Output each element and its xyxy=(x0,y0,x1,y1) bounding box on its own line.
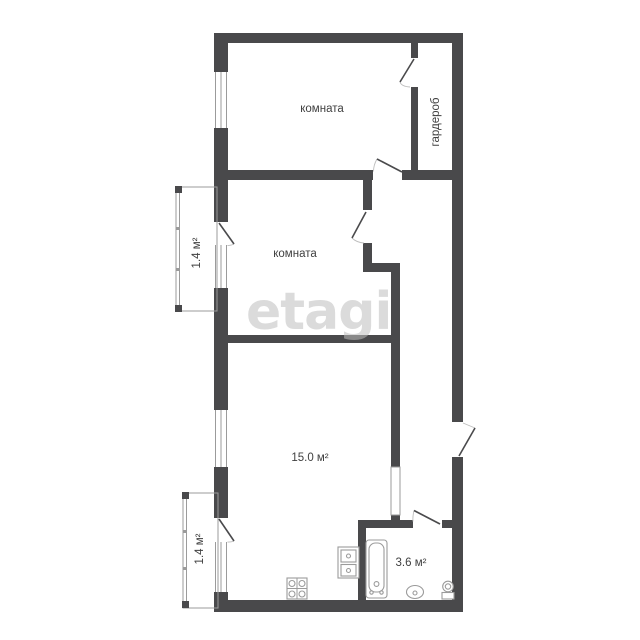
wall-bath-top-left xyxy=(358,520,413,528)
door-swing-icon xyxy=(219,519,234,542)
outer-walls xyxy=(214,33,463,612)
wall-divider1-right xyxy=(402,170,452,180)
wall-bath-top-right xyxy=(442,520,452,528)
kitchen-sink-icon xyxy=(338,547,359,578)
door-swing-icon xyxy=(219,223,234,246)
wall-right-2 xyxy=(452,457,463,612)
wall-right-1 xyxy=(452,33,463,422)
toilet-icon xyxy=(442,581,454,599)
door-swing-icon xyxy=(352,212,366,243)
wall-left-3 xyxy=(214,288,228,410)
door-swing-icon xyxy=(452,422,475,457)
wall-divider1-left xyxy=(228,170,373,180)
floor-plan-svg: комната гардероб комната 1.4 м² 15.0 м² … xyxy=(0,0,640,640)
label-room-top: комната xyxy=(300,103,344,115)
wall-bottom xyxy=(214,600,463,612)
fixtures xyxy=(287,540,454,599)
window-icon xyxy=(214,410,228,467)
windows xyxy=(214,72,400,592)
door-swing-icon xyxy=(374,159,403,172)
door-swing-icon xyxy=(400,59,414,87)
label-living-kitchen: 15.0 м² xyxy=(291,452,328,464)
window-icon xyxy=(214,72,228,128)
wall-divider2 xyxy=(228,335,400,343)
wall-wardrobe-stub xyxy=(411,43,418,58)
wall-corridor xyxy=(391,272,400,467)
window-icon xyxy=(214,245,228,288)
interior-walls xyxy=(228,43,452,600)
open-doorway xyxy=(391,467,400,515)
wall-room2-right-1 xyxy=(363,180,372,210)
floor-plan-canvas: комната гардероб комната 1.4 м² 15.0 м² … xyxy=(0,0,640,640)
wall-wardrobe xyxy=(411,87,418,170)
wall-jog xyxy=(363,263,400,272)
wall-left-1 xyxy=(214,33,228,72)
window-icon xyxy=(214,542,228,592)
room-labels: комната гардероб комната 1.4 м² 15.0 м² … xyxy=(191,97,442,569)
label-balcony-bottom: 1.4 м² xyxy=(194,533,206,564)
washbasin-icon xyxy=(407,586,424,599)
bathtub-icon xyxy=(366,540,387,598)
label-room-middle: комната xyxy=(273,248,317,260)
stove-icon xyxy=(287,578,307,599)
label-balcony-middle: 1.4 м² xyxy=(191,237,203,268)
label-wardrobe: гардероб xyxy=(430,97,442,146)
wall-top xyxy=(215,33,463,43)
door-swing-icon xyxy=(413,511,440,525)
wall-left-2 xyxy=(214,128,228,222)
label-bathroom: 3.6 м² xyxy=(396,557,427,569)
